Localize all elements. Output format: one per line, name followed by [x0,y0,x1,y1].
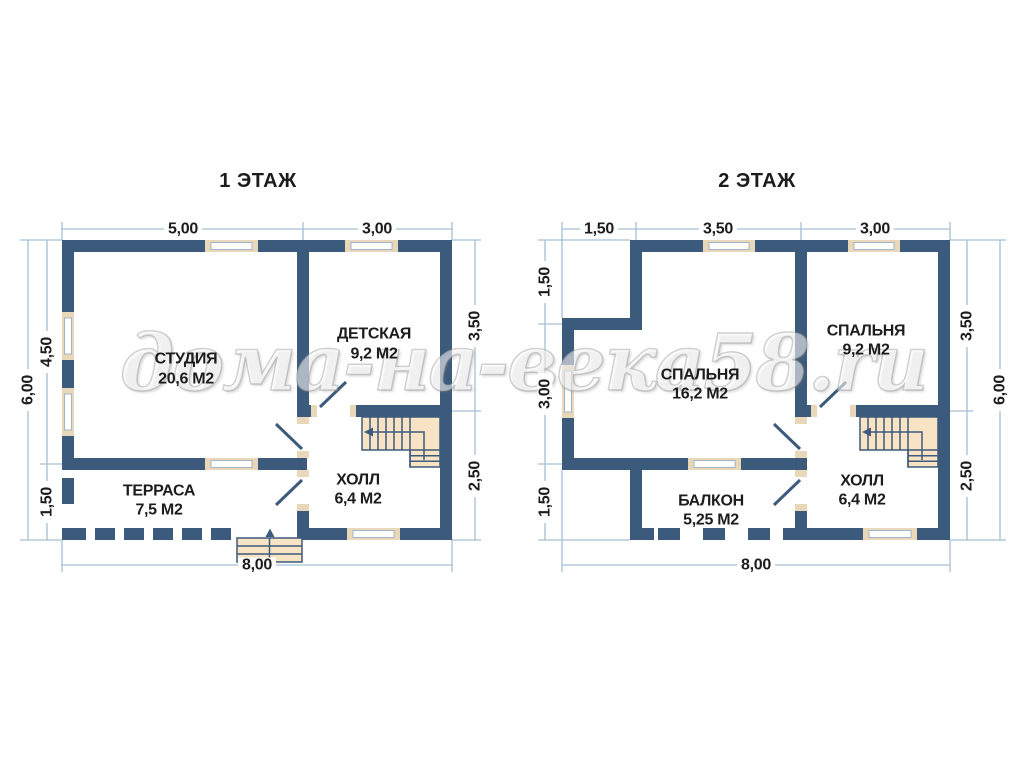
room-name: СТУДИЯ [155,351,218,368]
room-area: 5,25 М2 [683,512,739,529]
dimension-label: 2,50 [467,461,484,491]
dimension-label: 1,50 [39,487,56,517]
dimension-label: 1,50 [537,487,554,517]
room-area: 6,4 М2 [334,491,382,508]
dimension-label: 1,50 [537,267,554,297]
dimension-label: 3,00 [537,379,554,409]
dimension-label: 3,50 [703,221,733,238]
dimension-label: 2,50 [959,461,976,491]
floor-plan-labels: 1 ЭТАЖ 2 ЭТАЖ 5,00 3,00 6,00 4,50 1,50 3… [0,0,1024,768]
room-name: СПАЛЬНЯ [661,367,740,384]
room-area: 16,2 М2 [672,386,728,403]
dimension-label: 8,00 [741,557,771,574]
dimension-label: 3,00 [362,221,392,238]
dimension-label: 6,00 [992,375,1009,405]
floor-plan-canvas: дома-на-века58.ru 1 ЭТАЖ 2 ЭТАЖ 5,00 3,0… [0,0,1024,768]
floor1-room-labels: СТУДИЯ 20,6 М2 ДЕТСКАЯ 9,2 М2 ХОЛЛ 6,4 М… [123,326,411,519]
room-name: ХОЛЛ [336,472,380,489]
dimension-label: 6,00 [20,375,37,405]
room-area: 6,4 М2 [838,492,886,509]
room-area: 9,2 М2 [842,342,890,359]
room-area: 7,5 М2 [135,502,183,519]
room-area: 20,6 М2 [158,371,214,388]
dimension-label-backgrounds [21,222,1008,573]
dimension-label: 3,50 [959,311,976,341]
room-name: БАЛКОН [678,493,744,510]
room-name: ТЕРРАСА [123,483,196,500]
room-name: ДЕТСКАЯ [337,326,411,343]
dimension-label: 4,50 [39,337,56,367]
dimension-label: 3,50 [467,311,484,341]
dimension-label: 1,50 [584,221,614,238]
dimension-label: 5,00 [168,221,198,238]
room-name: СПАЛЬНЯ [827,323,906,340]
floor2-title: 2 ЭТАЖ [718,170,796,192]
floor2-room-labels: СПАЛЬНЯ 16,2 М2 СПАЛЬНЯ 9,2 М2 ХОЛЛ 6,4 … [661,323,906,529]
room-area: 9,2 М2 [350,346,398,363]
floor1-title: 1 ЭТАЖ [219,170,297,192]
dimension-label: 3,00 [860,221,890,238]
room-name: ХОЛЛ [840,473,884,490]
dimension-label: 8,00 [242,557,272,574]
